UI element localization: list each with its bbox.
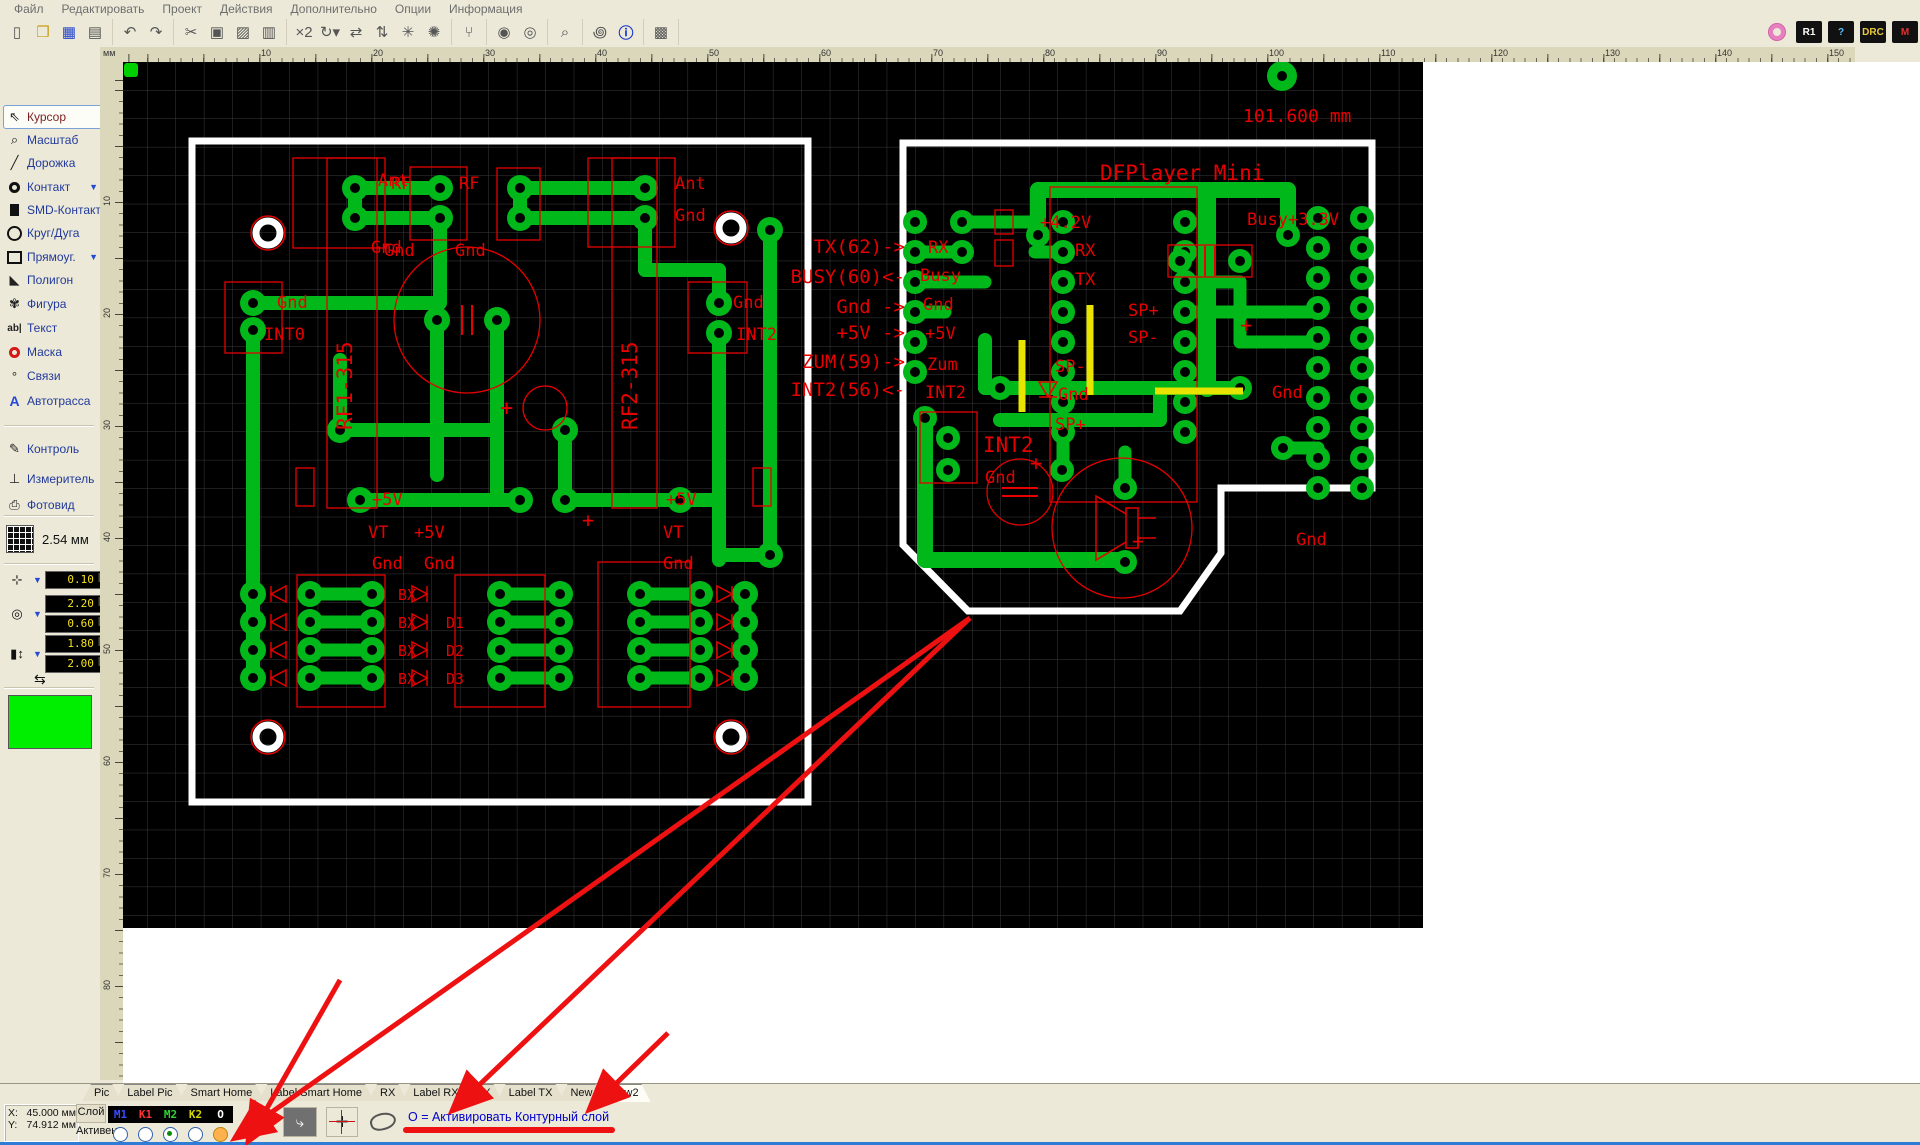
silk-label: + xyxy=(500,396,513,421)
flip-horizontal-icon[interactable]: ⇄ xyxy=(343,19,369,45)
flip-vertical-icon[interactable]: ⇅ xyxy=(369,19,395,45)
dropdown-arrow-icon[interactable]: ▼ xyxy=(33,649,42,659)
svg-text:+: + xyxy=(1240,313,1252,337)
silk-label: Gnd xyxy=(455,241,486,261)
silk-label: Ant xyxy=(675,174,706,194)
silk-label: DFPlayer Mini xyxy=(1100,161,1264,185)
print-glyph: ▤ xyxy=(88,23,102,41)
silk-label: Gnd xyxy=(1058,385,1089,405)
pad-size-value[interactable]: 0.60 xyxy=(45,615,105,633)
delete-icon[interactable]: ▥ xyxy=(256,19,282,45)
lock-glyph: ◉ xyxy=(497,23,510,41)
figure-icon: ✾ xyxy=(7,297,22,312)
track-mode-button[interactable]: ⤷ xyxy=(283,1107,317,1137)
tool-label: SMD-Контакт xyxy=(27,203,101,217)
y-value: 74.912 мм xyxy=(27,1119,76,1131)
unlock-icon[interactable]: ◎ xyxy=(517,19,543,45)
ruler-unit: мм xyxy=(103,48,115,58)
smd-icon xyxy=(7,203,22,218)
silk-label: SP- xyxy=(1055,357,1086,377)
undo-icon[interactable]: ↶ xyxy=(117,19,143,45)
silk-label: RX xyxy=(1075,241,1096,261)
h-ruler-label: 50 xyxy=(709,48,719,58)
tool-label: Полигон xyxy=(27,273,73,287)
svg-text:+: + xyxy=(1132,529,1144,553)
tab-rx[interactable]: RX xyxy=(368,1084,407,1102)
tab-label-pic[interactable]: Label Pic xyxy=(115,1084,184,1102)
silk-label: Gnd xyxy=(372,554,403,574)
tool-control[interactable]: ✎Контроль xyxy=(3,437,102,461)
h-ruler-label: 20 xyxy=(373,48,383,58)
grid-size-label: 2.54 мм xyxy=(42,532,89,547)
width-row-track-width: ⊹▼0.10 xyxy=(4,571,105,589)
toolbar-group: ◉◎ xyxy=(487,19,548,45)
silk-label: Gnd xyxy=(1272,383,1303,403)
tool-measure[interactable]: ⊥Измеритель xyxy=(3,467,102,491)
crosshair-button[interactable]: ✛ xyxy=(326,1107,358,1137)
silk-label: Gnd xyxy=(663,554,694,574)
menu-проект[interactable]: Проект xyxy=(154,1,210,17)
autoroute-icon: A xyxy=(7,394,22,409)
links-icon: ° xyxy=(7,369,22,384)
tool-zoom[interactable]: ⌕Масштаб xyxy=(3,128,102,152)
copy-icon[interactable]: ▣ xyxy=(204,19,230,45)
silk-label: ВХ xyxy=(398,586,416,604)
toolbar-right: R1?DRCM xyxy=(1764,17,1918,47)
photo-grid-glyph: ▩ xyxy=(654,23,668,41)
h-ruler-label: 130 xyxy=(1605,48,1620,58)
redo-glyph: ↷ xyxy=(150,23,163,41)
layer-color-swatch[interactable] xyxy=(8,695,92,749)
silk-label: VT xyxy=(663,523,683,543)
toolbar-group: ▩ xyxy=(644,19,679,45)
photoview-icon: ⎙ xyxy=(7,498,22,513)
dropdown-arrow-icon[interactable]: ▼ xyxy=(33,575,42,585)
measure-icon: ⊥ xyxy=(7,472,22,487)
track-width-value[interactable]: 0.10 xyxy=(45,571,105,589)
save-file-glyph: ▦ xyxy=(62,23,76,41)
zoom-icon: ⌕ xyxy=(7,133,22,148)
print-icon[interactable]: ▤ xyxy=(82,19,108,45)
tab-smart-home[interactable]: Smart Home xyxy=(179,1084,265,1102)
tool-autoroute[interactable]: AАвтотрасса xyxy=(3,389,102,413)
layer-name-m2: M2 xyxy=(158,1108,183,1121)
layer-radio-k2[interactable] xyxy=(183,1127,208,1142)
smd-size-value[interactable]: 2.00 xyxy=(45,655,105,673)
pin-annotation: +5V -> xyxy=(836,322,905,344)
layer-hint-text: O = Активировать Контурный слой xyxy=(408,1110,609,1124)
rect-icon xyxy=(7,250,22,265)
silk-label: SP- xyxy=(1128,328,1159,348)
menu-действия[interactable]: Действия xyxy=(212,1,281,17)
new-file-icon[interactable]: ▯ xyxy=(4,19,30,45)
contact-icon xyxy=(7,180,22,195)
silk-label: Gnd xyxy=(675,206,706,226)
tool-label: Курсор xyxy=(27,110,66,124)
silk-label: +5V xyxy=(414,523,445,543)
connections-glyph: ⑂ xyxy=(464,24,473,41)
pin-annotation: INT2(56)<- xyxy=(791,379,905,401)
silk-label: TX xyxy=(1075,270,1096,290)
v-ruler-label: 50 xyxy=(102,644,112,654)
tool-label: Связи xyxy=(27,369,61,383)
layer-name-m1: M1 xyxy=(108,1108,133,1121)
cursor-icon: ⇖ xyxy=(7,110,22,125)
silk-label: +4.2V xyxy=(1040,213,1091,233)
menu-файл[interactable]: Файл xyxy=(6,1,52,17)
silk-label: Gnd xyxy=(733,293,764,313)
v-ruler-label: 30 xyxy=(102,420,112,430)
layer-name-o: O xyxy=(208,1108,233,1121)
divider xyxy=(4,515,94,516)
open-file-icon[interactable]: ❒ xyxy=(30,19,56,45)
silk-label: ВХ xyxy=(398,642,416,660)
toolbar-group: ⑂ xyxy=(452,19,487,45)
silk-label: Gnd xyxy=(1296,530,1327,550)
undo-glyph: ↶ xyxy=(124,23,137,41)
silk-label: D2 xyxy=(446,642,464,660)
silk-label: RF xyxy=(391,174,411,194)
crosshair-green-glyph: ꩜ xyxy=(593,21,607,43)
track-width-icon: ⊹ xyxy=(4,572,30,588)
h-ruler-label: 80 xyxy=(1045,48,1055,58)
info-glyph: ⓘ xyxy=(618,22,633,43)
text-icon: ab| xyxy=(7,321,22,336)
r1-components-icon[interactable]: R1 xyxy=(1796,21,1822,43)
tool-label: Дорожка xyxy=(27,156,75,170)
grid-icon[interactable] xyxy=(6,525,34,553)
macro-m-icon[interactable]: M xyxy=(1892,21,1918,43)
silk-label: Busy xyxy=(920,266,961,286)
tool-links[interactable]: °Связи xyxy=(3,364,102,388)
tool-label: Текст xyxy=(27,321,57,335)
paste-icon[interactable]: ▨ xyxy=(230,19,256,45)
rotate-glyph: ↻▾ xyxy=(320,23,340,41)
width-row-smd-size: ▮↕▼1.802.00 xyxy=(4,635,105,673)
h-ruler-label: 140 xyxy=(1717,48,1732,58)
tool-label: Измеритель xyxy=(27,472,94,486)
cut-icon[interactable]: ✂ xyxy=(178,19,204,45)
toolbar-group: ⌕ xyxy=(548,19,583,45)
tool-label: Масштаб xyxy=(27,133,78,147)
lock-icon[interactable]: ◉ xyxy=(491,19,517,45)
x-value: 45.000 мм xyxy=(27,1107,76,1119)
silk-label: Gnd xyxy=(384,241,415,261)
tab-new2[interactable]: New2 xyxy=(598,1084,650,1102)
implode-glyph: ✺ xyxy=(428,23,441,41)
silk-label: SP+ xyxy=(1128,301,1159,321)
tool-track[interactable]: ╱Дорожка xyxy=(3,151,102,175)
silk-label: RX xyxy=(928,238,949,258)
silk-label: INT0 xyxy=(264,325,305,345)
tool-label: Прямоуг. xyxy=(27,250,76,264)
smd-size-icon: ▮↕ xyxy=(4,646,30,662)
smd-size-value[interactable]: 1.80 xyxy=(45,635,105,653)
silk-label: VT xyxy=(368,523,388,543)
menu-дополнительно[interactable]: Дополнительно xyxy=(283,1,385,17)
silk-label: D1 xyxy=(446,614,464,632)
dimension-label: 101.600 mm xyxy=(1243,106,1351,127)
silk-label: +5V xyxy=(925,324,956,344)
layer-radio-m1[interactable] xyxy=(108,1127,133,1142)
pcb-canvas[interactable]: ++++AntRFRFGndGndGndAntGndGndINT0GndINT2… xyxy=(123,62,1920,1083)
open-file-glyph: ❒ xyxy=(36,23,49,41)
horizontal-ruler: мм 102030405060708090100110120130140150 xyxy=(100,47,1920,62)
sprint-layout-window: ФайлРедактироватьПроектДействияДополните… xyxy=(0,0,1920,1145)
save-file-icon[interactable]: ▦ xyxy=(56,19,82,45)
layer-radio-m2[interactable] xyxy=(158,1127,183,1142)
layer-radio-o[interactable] xyxy=(208,1127,233,1142)
silk-label: RF2-315 xyxy=(618,341,642,430)
new-file-glyph: ▯ xyxy=(13,23,21,41)
dropdown-arrow-icon[interactable]: ▼ xyxy=(33,609,42,619)
tool-label: Маска xyxy=(27,345,62,359)
tool-polygon[interactable]: ◣Полигон xyxy=(3,268,102,292)
crosshair-green-icon[interactable]: ꩜ xyxy=(587,19,613,45)
connections-icon[interactable]: ⑂ xyxy=(456,19,482,45)
toolbar-group: ▯❒▦▤ xyxy=(0,19,113,45)
h-ruler-label: 90 xyxy=(1157,48,1167,58)
mask-icon xyxy=(7,345,22,360)
tool-label: Круг/Дуга xyxy=(27,226,79,240)
layer-caption: Слой xyxy=(76,1104,106,1123)
pin-annotation: ZUM(59)-> xyxy=(802,351,905,373)
pad-size-icon: ◎ xyxy=(4,606,30,622)
y-label: Y: xyxy=(8,1119,17,1131)
control-icon: ✎ xyxy=(7,442,22,457)
v-ruler-label: 20 xyxy=(102,308,112,318)
zoom-find-glyph: ⌕ xyxy=(561,24,569,41)
menu-bar: ФайлРедактироватьПроектДействияДополните… xyxy=(0,0,1920,17)
menu-редактировать[interactable]: Редактировать xyxy=(54,1,153,17)
width-row-pad-size: ◎▼2.200.60 xyxy=(4,595,105,633)
h-ruler-label: 40 xyxy=(597,48,607,58)
implode-icon[interactable]: ✺ xyxy=(421,19,447,45)
swap-values-icon[interactable]: ⇆ xyxy=(34,671,46,688)
silk-label: RF1-315 xyxy=(333,341,357,430)
silk-label: Gnd xyxy=(985,468,1016,488)
silk-label: SP+ xyxy=(1055,415,1086,435)
vertical-ruler: 1020304050607080 xyxy=(100,62,123,1083)
silk-label: INT2 xyxy=(983,433,1034,457)
divider xyxy=(4,687,94,688)
pcb-drawing: ++++AntRFRFGndGndGndAntGndGndINT0GndINT2… xyxy=(123,62,1920,1083)
tool-photoview[interactable]: ⎙Фотовид xyxy=(3,493,102,517)
tab-pic[interactable]: Pic xyxy=(82,1084,121,1102)
tab-new[interactable]: New xyxy=(558,1084,604,1102)
silk-label: ВХ xyxy=(398,670,416,688)
tab-tx[interactable]: TX xyxy=(465,1084,503,1102)
h-ruler-label: 110 xyxy=(1381,48,1395,58)
silk-label: Zum xyxy=(927,355,958,375)
tool-smd[interactable]: SMD-Контакт xyxy=(3,198,102,222)
toolbar-group: ↶↷ xyxy=(113,19,174,45)
photo-grid-icon[interactable]: ▩ xyxy=(648,19,674,45)
tool-label: Фотовид xyxy=(27,498,75,512)
v-ruler-label: 80 xyxy=(102,980,112,990)
menu-информация[interactable]: Информация xyxy=(441,1,530,17)
divider xyxy=(4,563,94,564)
svg-text:+: + xyxy=(582,508,594,532)
explode-glyph: ✳ xyxy=(402,23,415,41)
silk-label: Gnd xyxy=(277,293,308,313)
macro-donut-icon[interactable] xyxy=(1764,21,1790,43)
toolbar-group: ×2↻▾⇄⇅✳✺ xyxy=(287,19,452,45)
tool-label: Фигура xyxy=(27,297,66,311)
silk-label: Gnd xyxy=(424,554,455,574)
pin-annotation: Gnd -> xyxy=(836,296,905,318)
zoom-find-icon[interactable]: ⌕ xyxy=(552,19,578,45)
drc-check-icon[interactable]: DRC xyxy=(1860,21,1886,43)
tab-label-smart-home[interactable]: Label Smart Home xyxy=(258,1084,374,1102)
duplicate-x2-icon[interactable]: ×2 xyxy=(291,19,317,45)
cut-glyph: ✂ xyxy=(185,23,198,41)
v-ruler-label: 70 xyxy=(102,868,112,878)
silk-label: Gnd xyxy=(923,295,954,315)
unlock-glyph: ◎ xyxy=(523,23,536,41)
silk-label: +5V xyxy=(666,490,697,510)
tool-text[interactable]: ab|Текст xyxy=(3,316,102,340)
divider xyxy=(4,425,94,426)
layer-radio-k1[interactable] xyxy=(133,1127,158,1142)
tool-label: Контакт xyxy=(27,180,70,194)
silk-label: +5V xyxy=(372,490,403,510)
v-ruler-label: 40 xyxy=(102,532,112,542)
info-icon[interactable]: ⓘ xyxy=(613,19,639,45)
tool-rect[interactable]: Прямоуг.▼ xyxy=(3,245,102,269)
tool-figure[interactable]: ✾Фигура xyxy=(3,292,102,316)
layer-radio-group xyxy=(108,1127,233,1142)
toolbar: ▯❒▦▤↶↷✂▣▨▥×2↻▾⇄⇅✳✺⑂◉◎⌕꩜ⓘ▩ xyxy=(0,17,1920,48)
v-ruler-label: 60 xyxy=(102,756,112,766)
status-bar: X:45.000 мм Y:74.912 мм Слой Активен M1K… xyxy=(0,1101,1920,1142)
toolbar-group: ꩜ⓘ xyxy=(583,19,644,45)
pad-size-value[interactable]: 2.20 xyxy=(45,595,105,613)
paste-glyph: ▨ xyxy=(236,23,250,41)
silk-label: D3 xyxy=(446,670,464,688)
h-ruler-label: 70 xyxy=(933,48,943,58)
track-icon: ╱ xyxy=(7,156,22,171)
help-green-icon[interactable]: ? xyxy=(1828,21,1854,43)
circle-icon xyxy=(7,226,22,241)
layer-name-box: M1K1M2K2O xyxy=(108,1106,233,1123)
h-ruler-label: 100 xyxy=(1269,48,1284,58)
menu-опции[interactable]: Опции xyxy=(387,1,439,17)
h-ruler-label: 150 xyxy=(1829,48,1844,58)
silk-label: Busy+3.3V xyxy=(1247,210,1339,230)
polygon-icon: ◣ xyxy=(7,273,22,288)
project-tab-bar: PicLabel PicSmart HomeLabel Smart HomeRX… xyxy=(0,1083,1920,1102)
h-ruler-label: 60 xyxy=(821,48,831,58)
h-ruler-label: 10 xyxy=(261,48,271,58)
layer-name-k1: K1 xyxy=(133,1108,158,1121)
silk-label: INT2 xyxy=(925,383,966,403)
h-ruler-label: 120 xyxy=(1493,48,1508,58)
pin-annotation: TX(62)-> xyxy=(813,236,905,258)
v-ruler-label: 10 xyxy=(102,196,112,206)
tool-mask[interactable]: Маска xyxy=(3,340,102,364)
tool-cursor[interactable]: ⇖Курсор xyxy=(3,105,102,129)
rotate-icon[interactable]: ↻▾ xyxy=(317,19,343,45)
silk-label: INT2 xyxy=(736,325,777,345)
h-ruler-label: 30 xyxy=(485,48,495,58)
tab-label-rx[interactable]: Label RX xyxy=(401,1084,470,1102)
toolbar-group: ✂▣▨▥ xyxy=(174,19,287,45)
pin-annotation: BUSY(60)<- xyxy=(791,266,905,288)
freeform-button[interactable] xyxy=(366,1107,400,1135)
delete-glyph: ▥ xyxy=(262,23,276,41)
tool-circle[interactable]: Круг/Дуга xyxy=(3,221,102,245)
copy-glyph: ▣ xyxy=(210,23,224,41)
redo-icon[interactable]: ↷ xyxy=(143,19,169,45)
flip-vertical-glyph: ⇅ xyxy=(376,23,389,41)
silk-label: ВХ xyxy=(398,614,416,632)
tool-contact[interactable]: Контакт▼ xyxy=(3,175,102,199)
explode-icon[interactable]: ✳ xyxy=(395,19,421,45)
tool-label: Контроль xyxy=(27,442,79,456)
tool-label: Автотрасса xyxy=(27,394,90,408)
cursor-coordinates: X:45.000 мм Y:74.912 мм xyxy=(4,1104,79,1142)
duplicate-x2-glyph: ×2 xyxy=(295,24,312,41)
layer-name-k2: K2 xyxy=(183,1108,208,1121)
tab-label-tx[interactable]: Label TX xyxy=(497,1084,565,1102)
tool-panel: 2.54 мм ⇆ ⇖Курсор⌕Масштаб╱ДорожкаКонтакт… xyxy=(0,47,101,1083)
silk-label: RF xyxy=(459,174,479,194)
x-label: X: xyxy=(8,1107,18,1119)
flip-horizontal-glyph: ⇄ xyxy=(350,23,363,41)
